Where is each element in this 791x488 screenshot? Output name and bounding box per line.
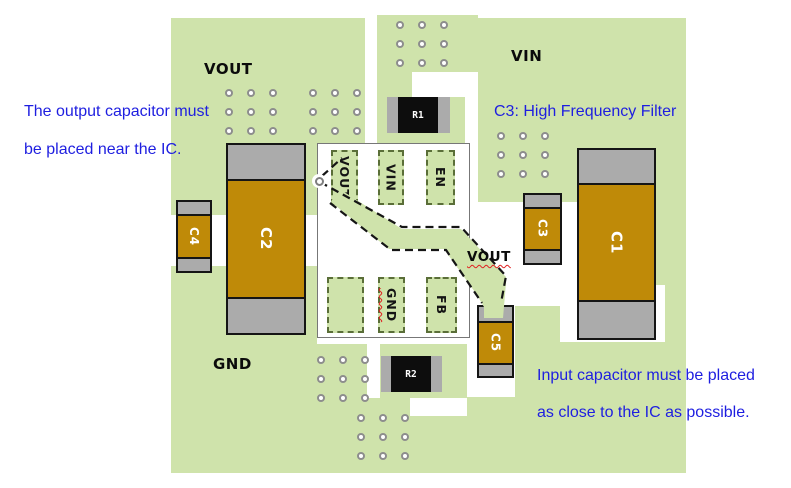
ic-pad-vin: VIN [378, 150, 404, 205]
resistor-r2: R2 [381, 356, 442, 392]
via [379, 452, 387, 460]
via [497, 151, 505, 159]
c4-label: C4 [187, 227, 201, 246]
via [353, 89, 361, 97]
via [269, 108, 277, 116]
pour-r1-strip-a [377, 72, 412, 97]
ic-pad-gnd: GND [378, 277, 405, 333]
via [418, 21, 426, 29]
note-c3-filter: C3: High Frequency Filter [494, 103, 676, 121]
capacitor-c3: C3 [523, 193, 562, 265]
via [541, 132, 549, 140]
via [497, 170, 505, 178]
via [353, 108, 361, 116]
via [519, 132, 527, 140]
ic-pin-label-fb: FB [434, 295, 449, 315]
via [225, 89, 233, 97]
note-input-cap-line2: as close to the IC as possible. [537, 404, 750, 422]
r1-pad-right [438, 97, 450, 133]
r1-body: R1 [398, 97, 438, 133]
via [317, 356, 325, 364]
via [361, 375, 369, 383]
via [396, 21, 404, 29]
c2-pad-bottom [228, 299, 304, 333]
via [269, 89, 277, 97]
via [361, 394, 369, 402]
channel-left-of-r2 [367, 344, 380, 398]
pcb-layout-diagram: VOUT VIN EN GND FB C2 C4 [0, 0, 791, 488]
c1-label: C1 [608, 231, 626, 254]
ic-pad-vout: VOUT [331, 150, 358, 205]
via [401, 452, 409, 460]
c4-body: C4 [178, 214, 210, 259]
c5-pad-bottom [479, 365, 512, 376]
capacitor-c1: C1 [577, 148, 656, 340]
c1-pad-top [579, 150, 654, 183]
via [396, 59, 404, 67]
ic-pad-en: EN [426, 150, 455, 205]
r1-pad-left [387, 97, 398, 133]
via [541, 170, 549, 178]
via [317, 394, 325, 402]
via [331, 127, 339, 135]
c3-pad-bottom [525, 251, 560, 263]
via [317, 375, 325, 383]
via [247, 127, 255, 135]
r2-label: R2 [405, 369, 416, 380]
via [247, 89, 255, 97]
capacitor-c5: C5 [477, 305, 514, 378]
ic-pin-label-gnd: GND [384, 288, 399, 322]
ic-pad-fb: FB [426, 277, 457, 333]
c2-body: C2 [228, 179, 304, 299]
via [379, 433, 387, 441]
net-label-vout-top: VOUT [204, 60, 253, 78]
resistor-r1: R1 [387, 97, 450, 133]
via [401, 414, 409, 422]
via [396, 40, 404, 48]
via [309, 108, 317, 116]
c1-body: C1 [579, 183, 654, 302]
via [331, 108, 339, 116]
via [440, 59, 448, 67]
c5-label: C5 [489, 333, 503, 352]
via [309, 127, 317, 135]
ic-pin-label-vin: VIN [384, 164, 399, 192]
via [440, 40, 448, 48]
via [357, 433, 365, 441]
via [339, 356, 347, 364]
via [519, 151, 527, 159]
via [353, 127, 361, 135]
via [401, 433, 409, 441]
capacitor-c4: C4 [176, 200, 212, 273]
c5-body: C5 [479, 321, 512, 365]
pour-below-c5 [467, 397, 515, 473]
c3-body: C3 [525, 207, 560, 251]
pour-top-center [377, 15, 478, 72]
via-vout-single [312, 174, 326, 188]
c4-pad-top [178, 202, 210, 214]
c1-pad-bottom [579, 302, 654, 338]
net-label-gnd: GND [213, 355, 252, 373]
ic-pin-label-vout: VOUT [337, 156, 352, 199]
via [379, 414, 387, 422]
c3-pad-top [525, 195, 560, 207]
via [247, 108, 255, 116]
via [357, 452, 365, 460]
via [418, 40, 426, 48]
r2-body: R2 [391, 356, 431, 392]
capacitor-c2: C2 [226, 143, 306, 335]
c2-label: C2 [257, 227, 275, 250]
via [440, 21, 448, 29]
net-label-vin: VIN [511, 47, 542, 65]
note-output-cap-line1: The output capacitor must [24, 103, 209, 121]
note-input-cap-line1: Input capacitor must be placed [537, 367, 755, 385]
c2-pad-top [228, 145, 304, 179]
channel-below-r2 [410, 398, 467, 416]
via [309, 89, 317, 97]
via [541, 151, 549, 159]
via [225, 108, 233, 116]
via [357, 414, 365, 422]
ic-pad-nc [327, 277, 364, 333]
via [519, 170, 527, 178]
r2-pad-left [381, 356, 391, 392]
via [497, 132, 505, 140]
via [269, 127, 277, 135]
r1-label: R1 [412, 110, 423, 121]
via [331, 89, 339, 97]
note-output-cap-line2: be placed near the IC. [24, 141, 181, 159]
via [339, 375, 347, 383]
c3-label: C3 [536, 219, 550, 238]
c4-pad-bottom [178, 259, 210, 271]
ic-pin-label-en: EN [433, 167, 448, 188]
net-label-vout-route: VOUT [467, 249, 511, 265]
c5-pad-top [479, 307, 512, 321]
via [225, 127, 233, 135]
via [339, 394, 347, 402]
r2-pad-right [431, 356, 442, 392]
via [361, 356, 369, 364]
via [418, 59, 426, 67]
